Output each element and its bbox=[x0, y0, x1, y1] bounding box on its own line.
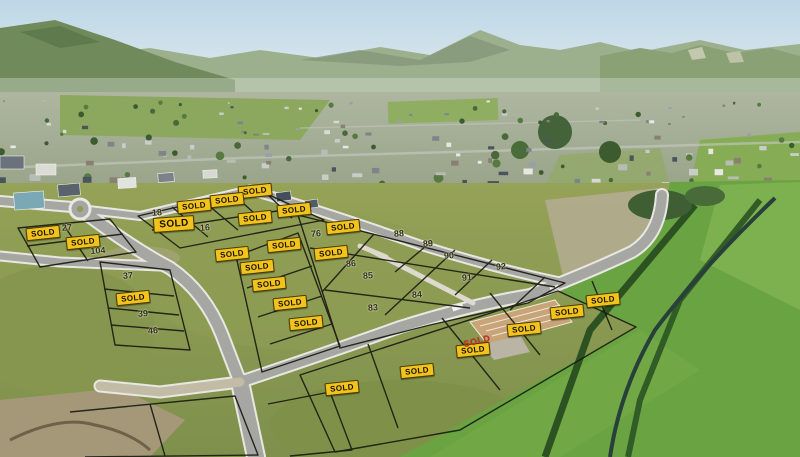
lot-number: 84 bbox=[412, 290, 423, 300]
sold-badge: SOLD bbox=[324, 380, 359, 396]
lot-number: 91 bbox=[462, 273, 473, 283]
sold-badge: SOLD bbox=[214, 246, 249, 262]
sold-badge: SOLD bbox=[209, 192, 244, 208]
lot-number: 27 bbox=[62, 223, 73, 233]
lot-number: 104 bbox=[90, 246, 106, 256]
aerial-subdivision-photo: SOLDSOLDSOLDSOLDSOLDSOLDSOLDSOLDSOLDSOLD… bbox=[0, 0, 800, 457]
lot-number: 89 bbox=[423, 239, 434, 249]
lot-number: 18 bbox=[152, 208, 163, 218]
sold-badge: SOLD bbox=[239, 259, 274, 275]
sold-badge: SOLD bbox=[549, 304, 584, 320]
sold-badge: SOLD bbox=[25, 225, 60, 241]
lot-number: 92 bbox=[496, 262, 507, 272]
sold-badge: SOLD bbox=[153, 215, 195, 233]
sold-badge: SOLD bbox=[288, 315, 323, 331]
sold-badge: SOLD bbox=[276, 202, 311, 218]
sold-badge: SOLD bbox=[325, 219, 360, 235]
sold-overlay: SOLDSOLDSOLDSOLDSOLDSOLDSOLDSOLDSOLDSOLD… bbox=[0, 0, 800, 457]
lot-number: 76 bbox=[311, 229, 322, 239]
lot-number: 16 bbox=[200, 223, 211, 233]
sold-badge: SOLD bbox=[272, 295, 307, 311]
sold-badge: SOLD bbox=[506, 321, 541, 337]
lot-number: 86 bbox=[346, 259, 357, 269]
lot-number: 83 bbox=[368, 303, 379, 313]
sold-badge: SOLD bbox=[237, 210, 272, 226]
lot-number: 39 bbox=[138, 309, 149, 319]
lot-number: 85 bbox=[363, 271, 374, 281]
lot-number: 90 bbox=[444, 251, 455, 261]
lot-number: 88 bbox=[394, 229, 405, 239]
sold-badge: SOLD bbox=[585, 292, 620, 308]
sold-badge: SOLD bbox=[399, 363, 434, 379]
lot-number: 37 bbox=[123, 271, 134, 281]
sold-badge: SOLD bbox=[251, 276, 286, 292]
sold-badge: SOLD bbox=[115, 290, 150, 306]
sold-badge: SOLD bbox=[266, 237, 301, 253]
sold-badge: SOLD bbox=[313, 245, 348, 261]
lot-number: 46 bbox=[148, 326, 159, 336]
sold-badge: SOLD bbox=[176, 198, 211, 214]
